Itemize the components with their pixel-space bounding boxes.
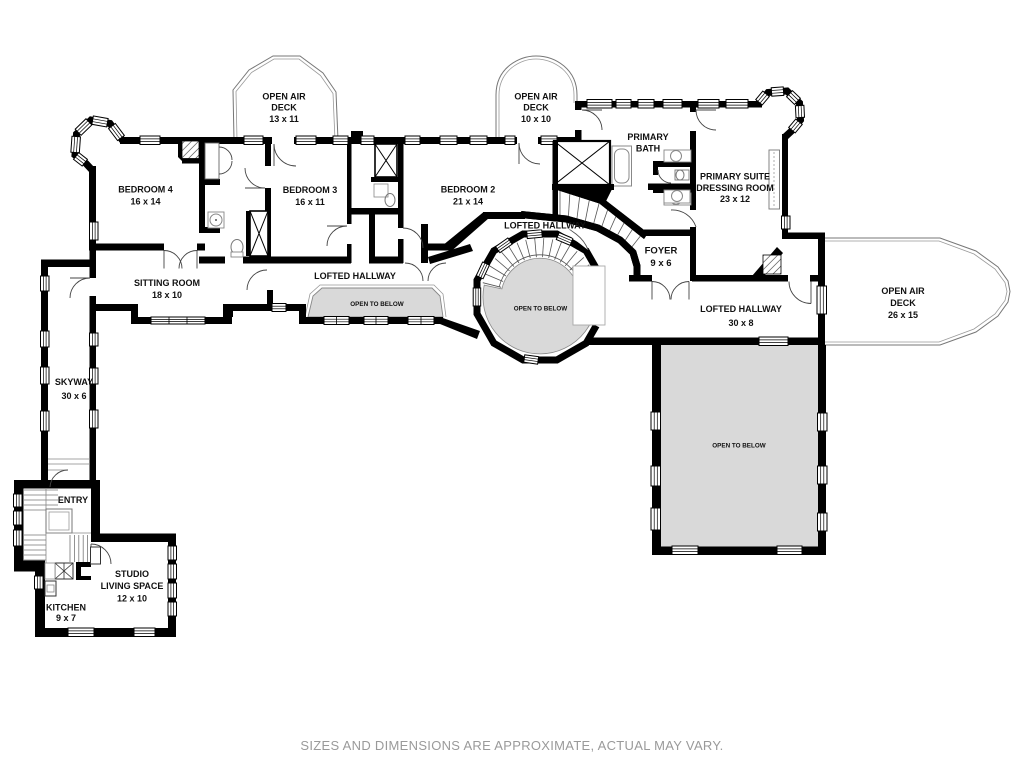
svg-text:16 x 11: 16 x 11 <box>295 197 325 207</box>
svg-text:SIZES AND DIMENSIONS ARE APPRO: SIZES AND DIMENSIONS ARE APPROXIMATE, AC… <box>300 738 723 753</box>
svg-text:DECK: DECK <box>523 103 549 113</box>
svg-text:16 x 14: 16 x 14 <box>130 197 160 207</box>
svg-text:PRIMARY: PRIMARY <box>627 132 668 142</box>
svg-text:LOFTED HALLWAY: LOFTED HALLWAY <box>314 271 396 281</box>
svg-text:LOFTED HALLWAY: LOFTED HALLWAY <box>504 221 586 231</box>
svg-text:DECK: DECK <box>890 298 916 308</box>
svg-text:30 x 8: 30 x 8 <box>728 318 753 328</box>
svg-text:LIVING SPACE: LIVING SPACE <box>101 581 164 591</box>
svg-text:BEDROOM 4: BEDROOM 4 <box>118 185 173 195</box>
svg-text:SITTING ROOM: SITTING ROOM <box>134 278 200 288</box>
svg-text:PRIMARY SUITE: PRIMARY SUITE <box>700 172 770 182</box>
svg-text:BEDROOM 2: BEDROOM 2 <box>441 185 496 195</box>
svg-text:SKYWAY: SKYWAY <box>55 377 93 387</box>
svg-text:9 x 7: 9 x 7 <box>56 613 76 623</box>
svg-text:9 x 6: 9 x 6 <box>650 258 671 269</box>
svg-text:26 x 15: 26 x 15 <box>888 310 918 320</box>
svg-text:DRESSING ROOM: DRESSING ROOM <box>696 183 774 193</box>
svg-text:DECK: DECK <box>271 103 297 113</box>
svg-text:23 x 12: 23 x 12 <box>720 194 750 204</box>
svg-text:13 x 11: 13 x 11 <box>269 114 299 124</box>
svg-text:BATH: BATH <box>636 144 660 154</box>
svg-text:LOFTED HALLWAY: LOFTED HALLWAY <box>700 304 782 314</box>
svg-text:ENTRY: ENTRY <box>58 495 88 505</box>
svg-text:18 x 10: 18 x 10 <box>152 290 182 300</box>
svg-text:12 x 10: 12 x 10 <box>117 594 147 604</box>
svg-text:OPEN AIR: OPEN AIR <box>881 286 925 296</box>
svg-text:OPEN AIR: OPEN AIR <box>514 91 558 101</box>
svg-text:30 x 6: 30 x 6 <box>61 391 86 401</box>
svg-text:FOYER: FOYER <box>645 246 678 257</box>
svg-text:BEDROOM 3: BEDROOM 3 <box>283 185 338 195</box>
svg-text:KITCHEN: KITCHEN <box>46 603 86 613</box>
svg-text:10 x 10: 10 x 10 <box>521 114 551 124</box>
svg-text:OPEN AIR: OPEN AIR <box>262 91 306 101</box>
svg-text:OPEN TO BELOW: OPEN TO BELOW <box>712 443 765 450</box>
svg-text:21 x 14: 21 x 14 <box>453 197 483 207</box>
svg-text:OPEN TO BELOW: OPEN TO BELOW <box>514 306 567 313</box>
svg-text:STUDIO: STUDIO <box>115 569 149 579</box>
svg-text:OPEN TO BELOW: OPEN TO BELOW <box>350 301 403 308</box>
